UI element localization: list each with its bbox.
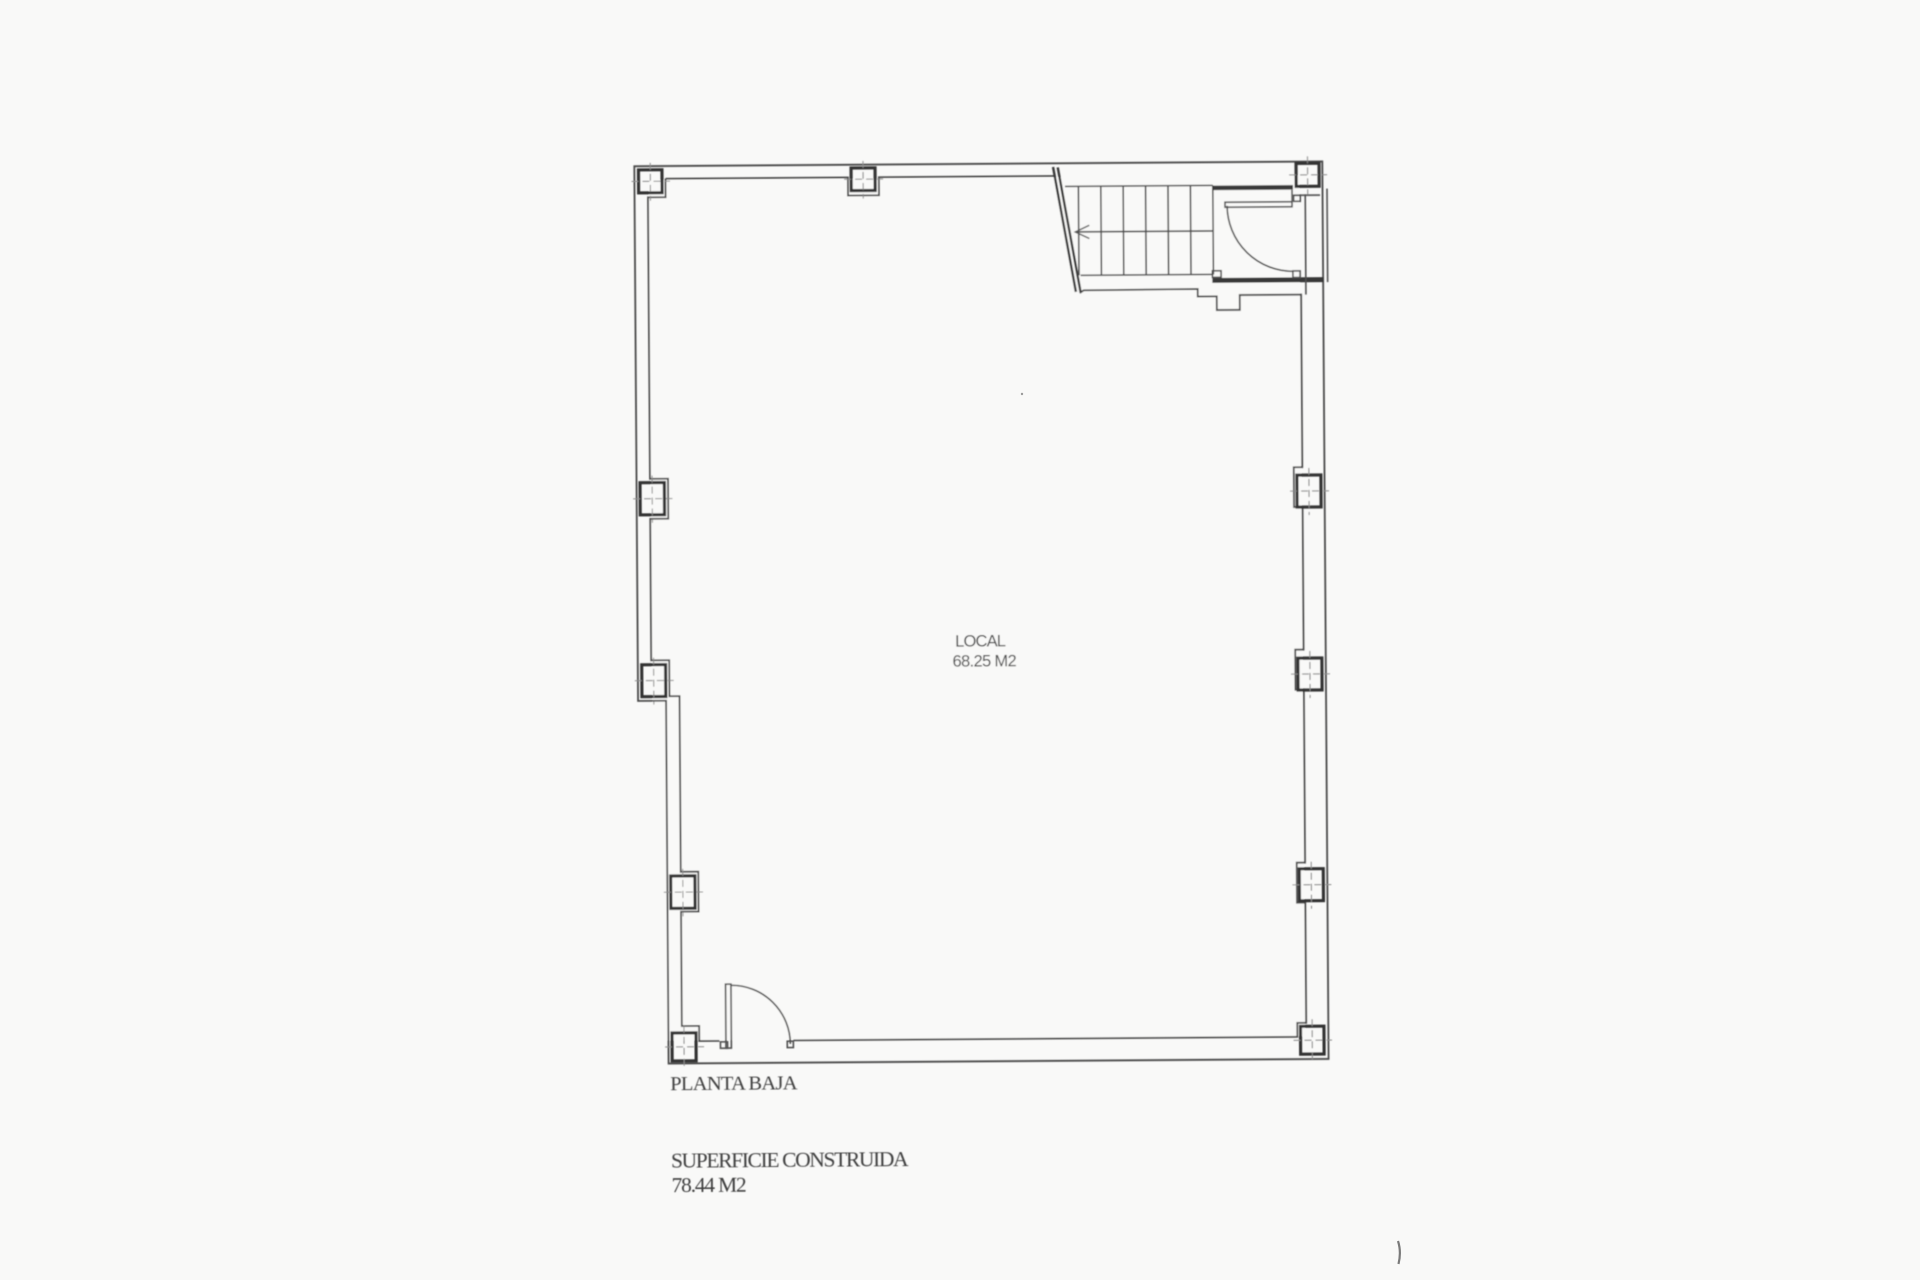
svg-text:78.44 M2: 78.44 M2 bbox=[671, 1172, 746, 1197]
svg-text:LOCAL: LOCAL bbox=[955, 632, 1006, 650]
svg-text:PLANTA BAJA: PLANTA BAJA bbox=[670, 1073, 798, 1096]
svg-text:68.25 M2: 68.25 M2 bbox=[952, 652, 1016, 670]
svg-text:SUPERFICIE CONSTRUIDA: SUPERFICIE CONSTRUIDA bbox=[671, 1147, 909, 1173]
